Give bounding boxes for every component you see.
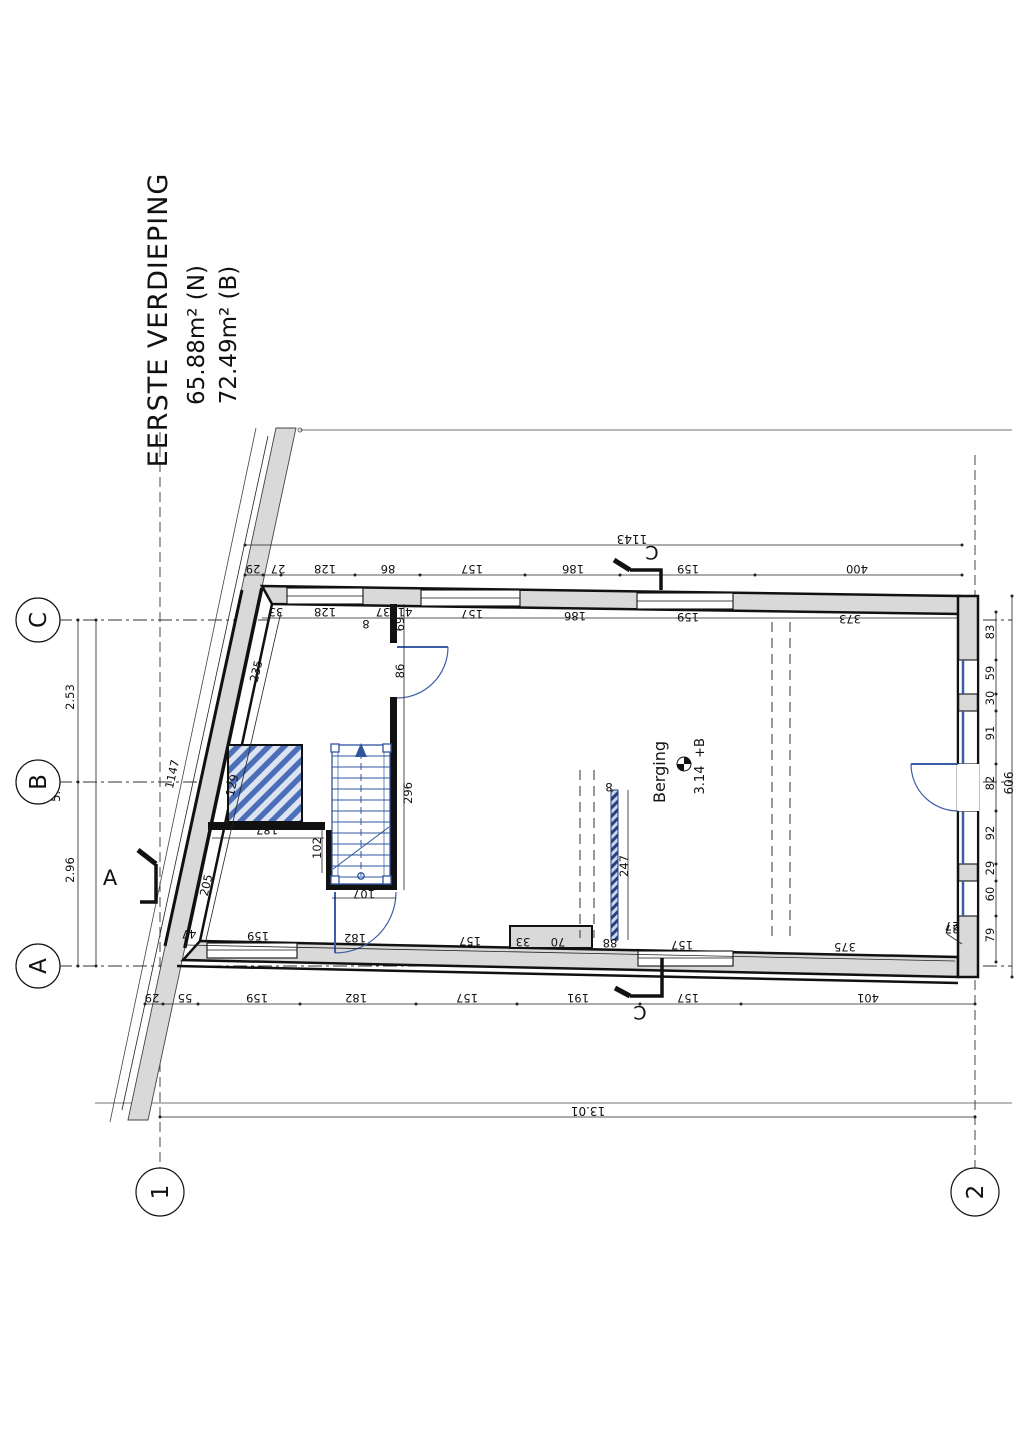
dim-label: 29 bbox=[145, 991, 160, 1005]
dim-label: 33 bbox=[269, 605, 284, 619]
dim-cols-total: 13.01 bbox=[571, 1104, 605, 1118]
grid-label-2: 2 bbox=[963, 1185, 989, 1200]
dim-slant-total: 1147 bbox=[162, 758, 182, 790]
dim-corner-27: 27 bbox=[945, 922, 960, 936]
dim-label: 33 bbox=[516, 935, 531, 949]
dim-label: 375 bbox=[834, 940, 856, 954]
dim-right-total: 606 bbox=[1002, 772, 1016, 795]
dim-label: 30 bbox=[983, 691, 997, 706]
dim-label: 157 bbox=[461, 562, 483, 576]
dim-label: 37 bbox=[376, 605, 391, 619]
dim-label: 157 bbox=[459, 934, 481, 948]
room-level: +B bbox=[693, 738, 708, 758]
dim-label: 91 bbox=[983, 726, 997, 741]
dim-label: 157 bbox=[677, 991, 699, 1005]
dim-label: 182 bbox=[344, 931, 366, 945]
area-n: 65.88m² (N) bbox=[184, 265, 210, 405]
dim-label: 79 bbox=[983, 928, 997, 943]
dim-label: 47 bbox=[182, 927, 197, 941]
dim-label: 159 bbox=[246, 991, 268, 1005]
grid-label-a: A bbox=[26, 958, 52, 974]
bottom-outer-dims: 29 55 159 182 157 191 157 401 13.01 bbox=[145, 991, 879, 1118]
stair bbox=[331, 743, 391, 884]
dim-label: 60 bbox=[983, 887, 997, 902]
dim-label: 191 bbox=[567, 991, 589, 1005]
floorplan-drawing: 29 27 128 86 157 186 159 400 1143 33 128… bbox=[0, 0, 1024, 1447]
dim-label: 157 bbox=[461, 607, 483, 621]
dim-part-8: 8 bbox=[605, 780, 612, 794]
dim-label: 401 bbox=[857, 991, 879, 1005]
dim-label: 27 bbox=[271, 562, 286, 576]
dim-label: 55 bbox=[178, 991, 193, 1005]
right-dims: 83 59 30 91 82 92 29 60 79 606 bbox=[983, 625, 1016, 943]
dim-102: 102 bbox=[310, 837, 324, 859]
dim-label: 70 bbox=[551, 935, 566, 949]
room-area: 3.14 bbox=[693, 766, 708, 795]
dim-107: 107 bbox=[353, 887, 375, 901]
dim-69: 69 bbox=[393, 617, 407, 632]
dim-ba: 2.96 bbox=[63, 857, 77, 883]
dim-label: 128 bbox=[314, 562, 336, 576]
dim-label: 157 bbox=[456, 991, 478, 1005]
dim-label: 159 bbox=[677, 562, 699, 576]
room-name: Berging bbox=[650, 741, 669, 803]
grid-label-c: C bbox=[26, 612, 52, 628]
dim-label: 59 bbox=[983, 666, 997, 681]
dim-label: 157 bbox=[671, 938, 693, 952]
dim-label: 128 bbox=[314, 605, 336, 619]
dim-cb: 2.53 bbox=[63, 684, 77, 710]
section-label-c-top: C bbox=[645, 541, 658, 563]
dim-label: 29 bbox=[246, 562, 261, 576]
top-outer-dims: 29 27 128 86 157 186 159 400 1143 bbox=[246, 532, 868, 576]
dim-247: 247 bbox=[617, 855, 631, 877]
section-label-a-left: A bbox=[103, 866, 118, 890]
title-block: EERSTE VERDIEPING 65.88m² (N) 72.49m² (B… bbox=[143, 173, 242, 468]
dim-86: 86 bbox=[393, 664, 407, 679]
dim-label: 88 bbox=[603, 936, 618, 950]
dim-label: 186 bbox=[564, 609, 586, 623]
dim-label: 92 bbox=[983, 826, 997, 841]
dim-label: 182 bbox=[345, 991, 367, 1005]
dim-label: 82 bbox=[983, 776, 997, 791]
dim-8: 8 bbox=[362, 617, 369, 631]
dim-label: 86 bbox=[381, 562, 396, 576]
section-marker-c-top: C bbox=[614, 541, 661, 590]
level-symbol bbox=[677, 757, 691, 771]
dim-296: 296 bbox=[401, 782, 415, 804]
dim-label: 159 bbox=[247, 929, 269, 943]
section-marker-a-left: A bbox=[103, 850, 156, 902]
dim-label: 186 bbox=[562, 562, 584, 576]
dim-label: 400 bbox=[846, 562, 868, 576]
grid-label-1: 1 bbox=[148, 1185, 174, 1200]
dim-label: 373 bbox=[839, 612, 861, 626]
dim-label: 29 bbox=[983, 861, 997, 876]
dim-overall-top: 1143 bbox=[617, 532, 648, 546]
dim-label: 83 bbox=[983, 625, 997, 640]
drawing-title: EERSTE VERDIEPING bbox=[143, 173, 174, 468]
section-label-c-bottom: C bbox=[633, 1001, 646, 1023]
area-b: 72.49m² (B) bbox=[216, 266, 242, 405]
dim-187: 187 bbox=[256, 823, 278, 837]
grid-label-b: B bbox=[26, 774, 52, 790]
dim-label: 159 bbox=[677, 610, 699, 624]
